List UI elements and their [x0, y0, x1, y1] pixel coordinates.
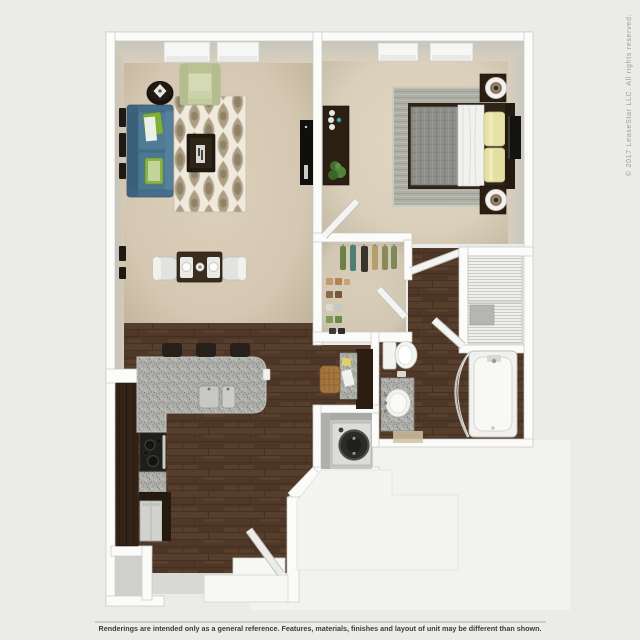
- svg-text:© 2017 LeaseStar LLC. All righ: © 2017 LeaseStar LLC. All rights reserve…: [625, 14, 633, 176]
- svg-text:Renderings are intended only a: Renderings are intended only as a genera…: [99, 624, 542, 633]
